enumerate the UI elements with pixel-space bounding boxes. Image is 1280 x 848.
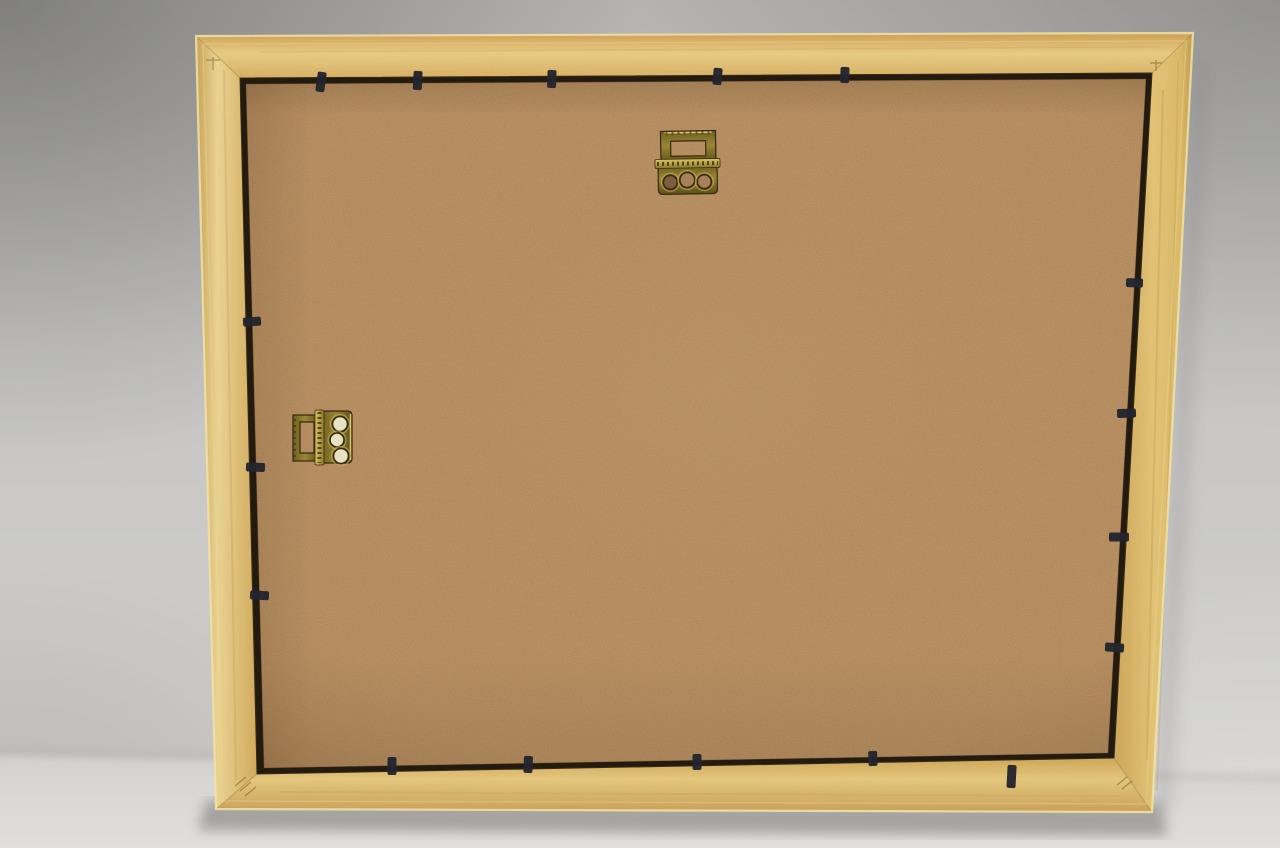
- retaining-tab-metal: [388, 757, 397, 775]
- retaining-tab-metal: [1126, 278, 1143, 288]
- retaining-tab-metal: [1117, 408, 1136, 418]
- retaining-tab: [1006, 765, 1016, 788]
- retaining-tab-metal: [250, 590, 269, 600]
- retaining-tab: [1117, 408, 1136, 418]
- sawtooth-hanger-top: [654, 130, 720, 194]
- retaining-tab: [1105, 642, 1125, 652]
- retaining-tab: [1126, 278, 1143, 288]
- retaining-tab: [712, 68, 722, 86]
- retaining-tab: [243, 316, 262, 326]
- retaining-tab-metal: [547, 70, 557, 88]
- retaining-tab-metal: [1105, 642, 1125, 652]
- retaining-tab-metal: [246, 462, 265, 472]
- hanger-nail-hole: [334, 449, 349, 464]
- photo-back-of-picture-frame: [0, 0, 1280, 848]
- retaining-tab-metal: [243, 316, 262, 326]
- retaining-tab-metal: [413, 71, 423, 90]
- hanger-nail-hole: [697, 175, 711, 189]
- hanger-nail-hole: [663, 175, 677, 189]
- retaining-tab-metal: [523, 756, 533, 773]
- retaining-tab: [1109, 533, 1129, 542]
- retaining-tab: [523, 756, 533, 773]
- photo-stage: [0, 0, 1280, 848]
- retaining-tab-metal: [840, 67, 850, 83]
- retaining-tab: [547, 70, 557, 88]
- retaining-tab: [250, 590, 269, 600]
- retaining-tab: [693, 754, 702, 770]
- hanger-nail-hole: [330, 433, 344, 447]
- hanger-nail-hole: [333, 417, 348, 432]
- hanger-nail-hole: [680, 172, 695, 187]
- retaining-tab: [388, 757, 397, 775]
- retaining-tab-metal: [712, 68, 722, 86]
- frame-rail-top-grain: [196, 33, 1193, 78]
- retaining-tab-metal: [1109, 533, 1129, 542]
- retaining-tab: [246, 462, 265, 472]
- retaining-tab: [413, 71, 423, 90]
- retaining-tab-metal: [693, 754, 702, 770]
- retaining-tab: [868, 751, 878, 766]
- retaining-tab-metal: [1006, 765, 1016, 788]
- retaining-tab: [840, 67, 850, 83]
- retaining-tab-metal: [868, 751, 878, 766]
